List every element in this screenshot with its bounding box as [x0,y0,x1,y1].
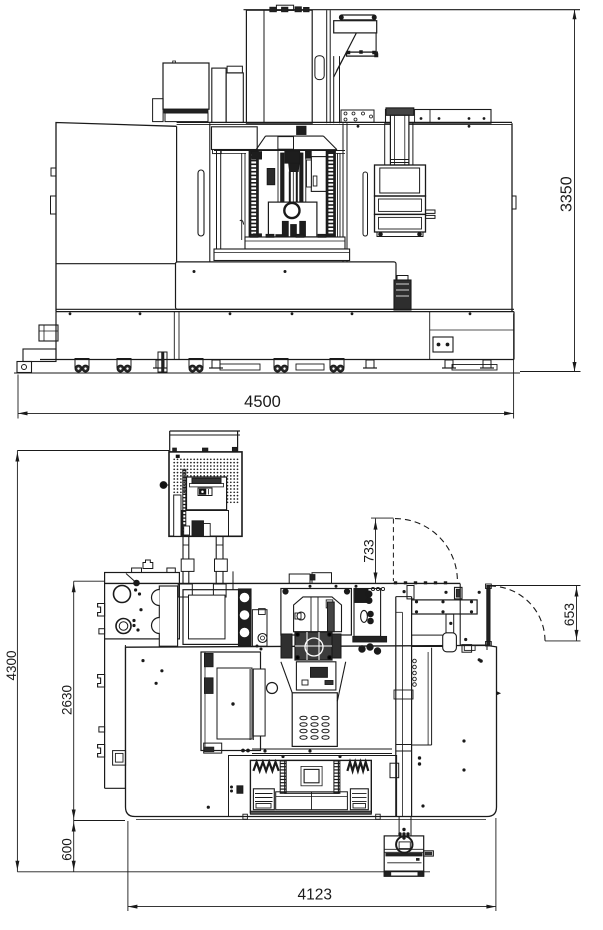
svg-text:2630: 2630 [59,685,74,715]
svg-text:4500: 4500 [244,393,281,411]
svg-text:4123: 4123 [297,887,331,904]
svg-text:600: 600 [60,838,75,861]
svg-text:733: 733 [361,539,377,563]
svg-text:653: 653 [561,603,577,627]
svg-text:4300: 4300 [4,650,19,680]
svg-text:3350: 3350 [559,176,576,212]
